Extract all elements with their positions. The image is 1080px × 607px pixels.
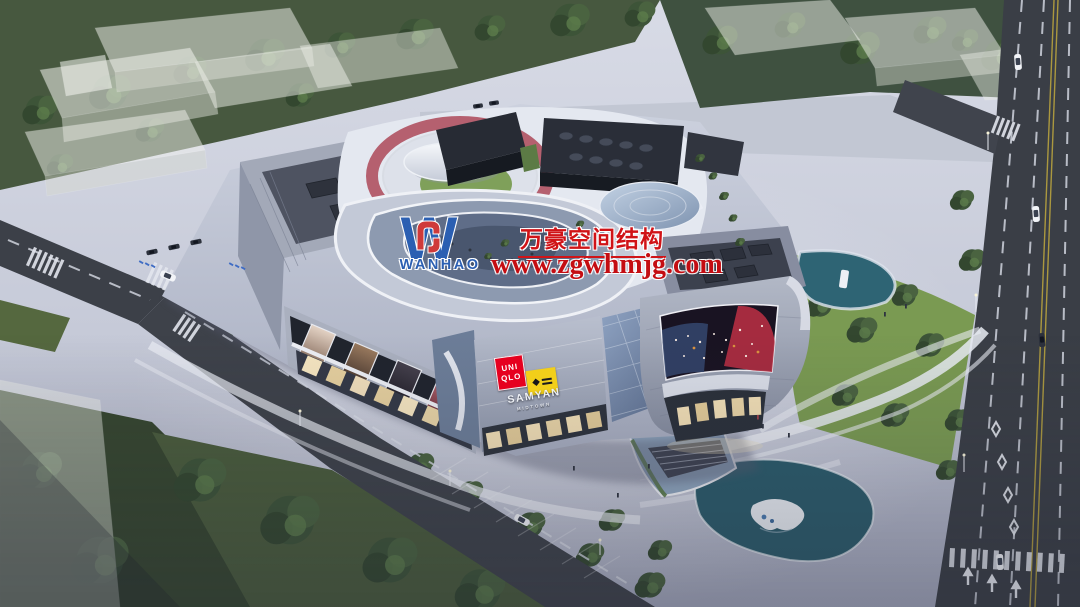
watermark-logo: W	[401, 205, 458, 272]
aerial-rendering-stage: W UNI QLO ◆ SAMYAN MIDTOWN WANHAO 万豪空间结构…	[0, 0, 1080, 607]
scene-canvas: W	[0, 0, 1080, 607]
logo-w-monogram-icon: W	[401, 205, 458, 272]
dusk-overlay	[0, 0, 1080, 607]
